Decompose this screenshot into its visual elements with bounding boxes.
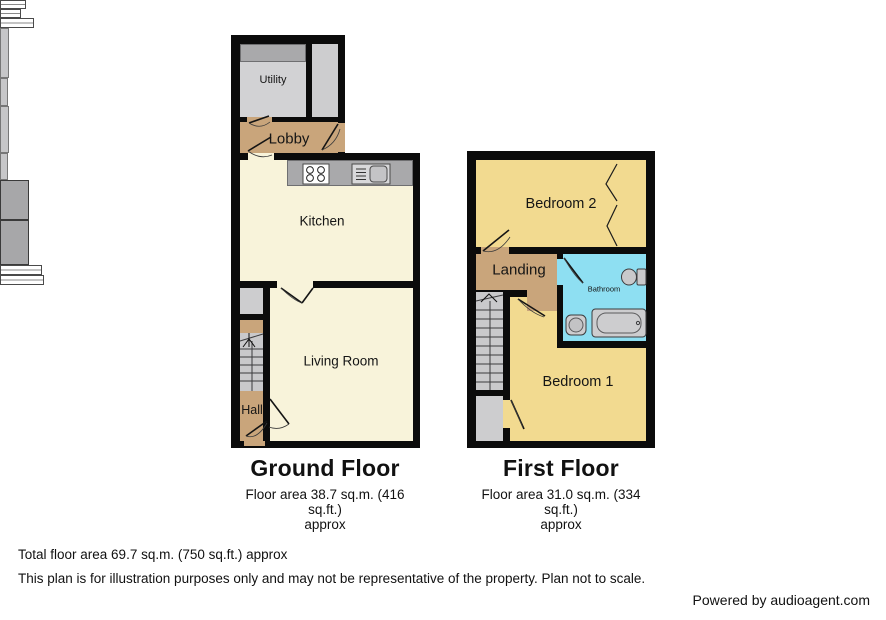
store-room (312, 44, 338, 118)
landing-bedroom1-wall (503, 290, 527, 297)
landing-extension (527, 290, 557, 311)
first-floor-title: First Floor (466, 455, 656, 482)
disclaimer-text: This plan is for illustration purposes o… (18, 571, 645, 586)
kitchen-living-wall-right (313, 281, 413, 288)
bedroom2-wardrobe-bottom (0, 220, 29, 265)
bathroom-door-opening (557, 259, 563, 285)
ground-floor-title: Ground Floor (230, 455, 420, 482)
bedroom1-window (0, 275, 44, 285)
first-floor-area: Floor area 31.0 sq.m. (334 sq.ft.) (466, 487, 656, 517)
utility-counter (240, 44, 306, 62)
bathroom-bedroom1-wall (557, 341, 646, 348)
kitchen-living-wall-left (240, 281, 277, 288)
kitchen-label: Kitchen (299, 214, 344, 229)
utility-label: Utility (260, 74, 287, 86)
front-door-opening (244, 441, 265, 446)
bedroom2-door-opening (481, 247, 509, 254)
living-side-window (0, 106, 9, 153)
lobby-label: Lobby (269, 131, 310, 148)
first-floor-caption: First Floor Floor area 31.0 sq.m. (334 s… (466, 455, 656, 532)
hall-living-wall-upper (263, 281, 270, 399)
hall-label: Hall (241, 403, 263, 417)
first-floor-approx: approx (466, 517, 656, 532)
bathroom-label: Bathroom (588, 285, 621, 294)
ground-floor-caption: Ground Floor Floor area 38.7 sq.m. (416 … (230, 455, 420, 532)
total-area-text: Total floor area 69.7 sq.m. (750 sq.ft.)… (18, 547, 287, 562)
kitchen-side-window (0, 28, 9, 78)
kitchen-top-window (0, 18, 34, 28)
ground-floor-approx: approx (230, 517, 420, 532)
first-floor-stairs (476, 292, 503, 390)
first-floor-plan: Bedroom 2 Landing Bathroom Bedroom 1 (0, 180, 886, 285)
hall-living-wall-lower (263, 428, 270, 441)
bedroom2-wardrobe-top (0, 180, 29, 220)
living-room-label: Living Room (303, 354, 378, 369)
living-side-window-sill (0, 153, 8, 180)
bedroom2-window (0, 265, 42, 275)
ground-floor-area: Floor area 38.7 sq.m. (416 sq.ft.) (230, 487, 420, 517)
bedroom1-label: Bedroom 1 (543, 374, 614, 390)
bedroom2-label: Bedroom 2 (526, 196, 597, 212)
kitchen-living-door-opening (277, 281, 313, 288)
kitchen-side-window-sill (0, 78, 8, 106)
ground-stairs (240, 333, 263, 391)
understairs-cupboard (240, 288, 263, 314)
lobby-kitchen-door-opening (248, 153, 274, 160)
closet-door-opening (503, 400, 510, 428)
kitchen-counter (287, 160, 413, 186)
landing-label: Landing (492, 262, 545, 279)
utility-window (0, 0, 26, 9)
lobby-back-door-opening (338, 123, 345, 152)
utility-door-opening (247, 117, 272, 122)
floorplan-page: Utility Lobby Kitchen Living Room Hall B… (0, 0, 886, 620)
bathroom-room (563, 254, 646, 341)
understairs-closet (476, 396, 503, 441)
ground-floor-plan: Utility Lobby Kitchen Living Room Hall (0, 0, 886, 180)
store-window (0, 9, 21, 18)
powered-by-credit: Powered by audioagent.com (693, 592, 870, 608)
